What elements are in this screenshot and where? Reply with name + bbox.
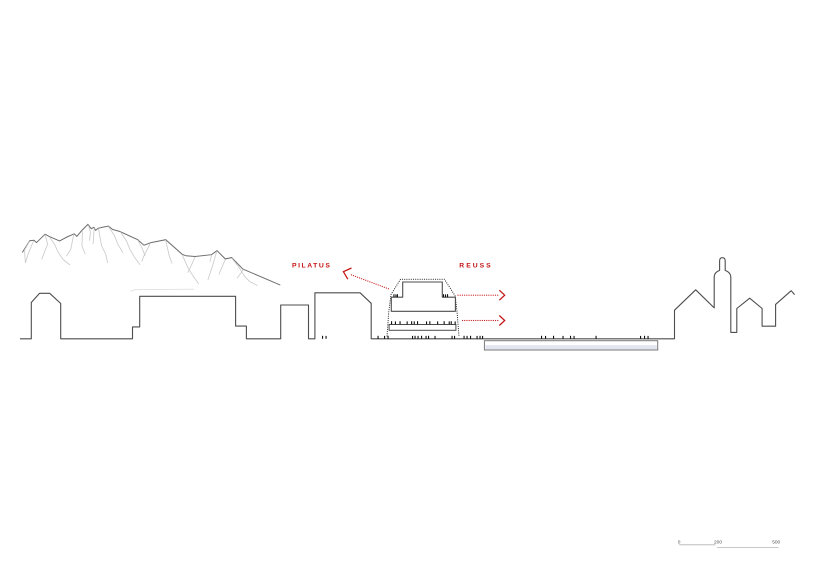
svg-text:500: 500 bbox=[772, 539, 780, 545]
svg-text:REUSS: REUSS bbox=[459, 263, 492, 270]
svg-text:PILATUS: PILATUS bbox=[292, 263, 331, 270]
